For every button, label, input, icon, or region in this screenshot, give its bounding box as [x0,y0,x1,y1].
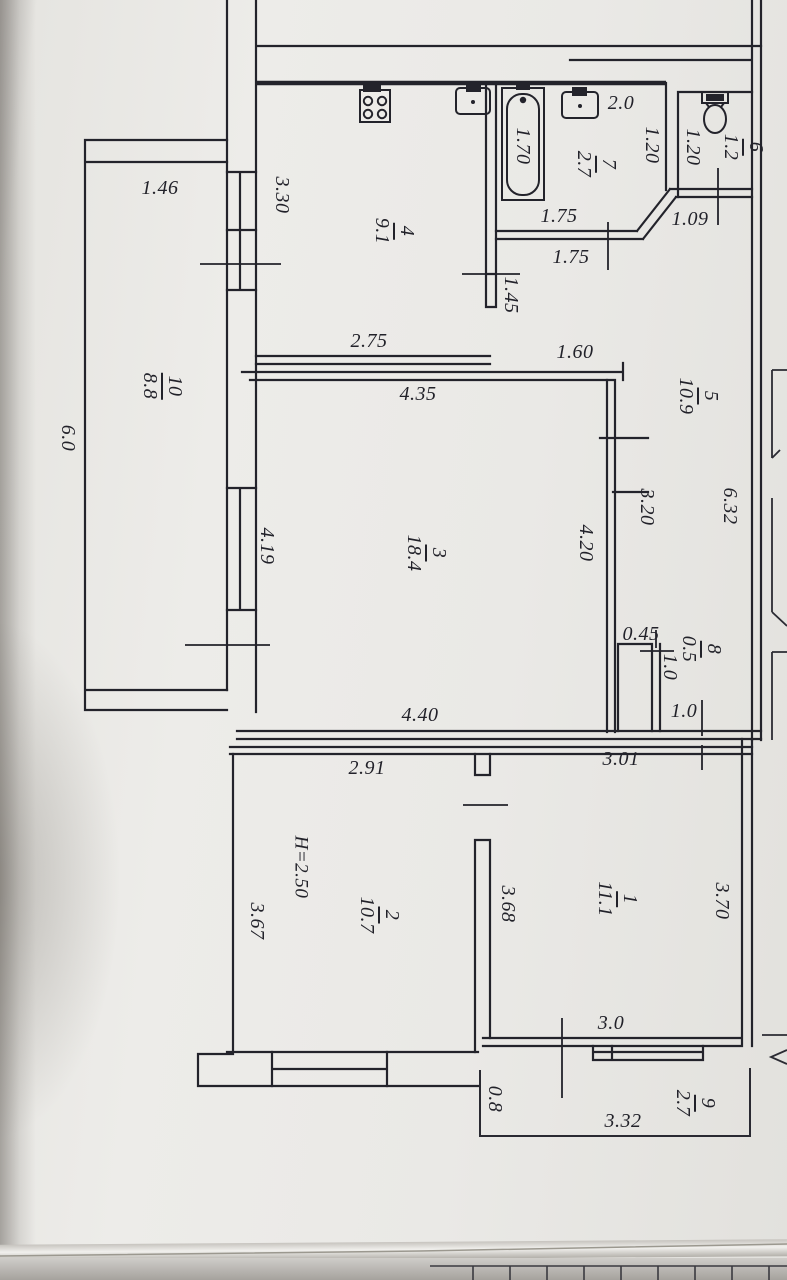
room-area: 2.7 [672,1088,694,1119]
dim-1-70: 1.70 [513,128,533,165]
dim-1-75a: 1.75 [541,206,578,226]
dim-1-09: 1.09 [672,209,709,229]
room-label-8: 8 0.5 [678,634,724,665]
room-label-2: 2 10.7 [356,895,402,936]
dim-4-35: 4.35 [400,384,437,404]
room-label-4: 4 9.1 [371,216,417,247]
dim-6-0: 6.0 [58,425,78,452]
room-label-10: 10 8.8 [139,371,185,402]
dim-3-68: 3.68 [498,886,518,923]
dim-3-20: 3.20 [637,489,657,526]
room-area: 10.9 [675,376,697,417]
dim-1-46: 1.46 [142,178,179,198]
stove-icon [360,85,390,122]
dim-2-75: 2.75 [351,331,388,351]
room-number: 8 [700,641,724,658]
dim-4-19: 4.19 [257,528,277,565]
dim-3-01: 3.01 [603,749,640,769]
dim-1-0b: 1.0 [671,701,698,721]
dim-3-32: 3.32 [605,1111,642,1131]
room-area: 10.7 [356,895,378,936]
room-label-9: 9 2.7 [672,1088,718,1119]
room-number: 5 [697,388,721,405]
neighbor-outlines [762,370,787,1064]
dim-2-91: 2.91 [349,758,386,778]
room-label-5: 5 10.9 [675,376,721,417]
room-label-3: 3 18.4 [403,533,449,574]
fold-crease-line [0,1244,787,1256]
dim-6-32: 6.32 [720,488,740,525]
room-area: 0.5 [678,634,700,665]
room-label-6: 6 1.2 [720,132,766,163]
dim-4-20: 4.20 [576,525,596,562]
dim-4-40: 4.40 [402,705,439,725]
height-note: H=2.50 [292,836,311,899]
room-area: 1.2 [720,132,742,163]
room-area: 9.1 [371,216,393,247]
dim-3-67: 3.67 [247,903,267,940]
room-area: 18.4 [403,533,425,574]
dim-1-0a: 1.0 [660,654,680,681]
floor-plan-drawing [0,0,787,1280]
floor-plan-photo: 1.46 2.0 1.75 1.09 1.75 2.75 1.60 4.35 0… [0,0,787,1280]
dim-1-60: 1.60 [557,342,594,362]
room-number: 2 [378,907,402,924]
room-area: 2.7 [573,149,595,180]
dim-1-75b: 1.75 [553,247,590,267]
room-number: 7 [595,156,619,173]
dim-2-0: 2.0 [608,93,635,113]
dim-3-30: 3.30 [272,177,292,214]
dim-0-8: 0.8 [485,1086,505,1113]
washbasin-icon [562,88,598,118]
dim-1-20b: 1.20 [683,129,703,166]
room-number: 3 [425,545,449,562]
dim-0-45: 0.45 [623,624,660,644]
second-sheet-grid [430,1266,787,1280]
room-number: 10 [161,373,185,400]
dim-1-20a: 1.20 [642,127,662,164]
toilet-icon [702,92,728,133]
room-area: 8.8 [139,371,161,402]
room-number: 6 [742,139,766,156]
room-label-7: 7 2.7 [573,149,619,180]
room-area: 11.1 [594,879,616,919]
room-number: 1 [616,891,640,908]
dim-3-70: 3.70 [712,883,732,920]
dim-1-45: 1.45 [501,277,521,314]
dim-3-0: 3.0 [598,1013,625,1033]
room-label-1: 1 11.1 [594,879,640,919]
room-number: 4 [393,223,417,240]
room-number: 9 [694,1095,718,1112]
